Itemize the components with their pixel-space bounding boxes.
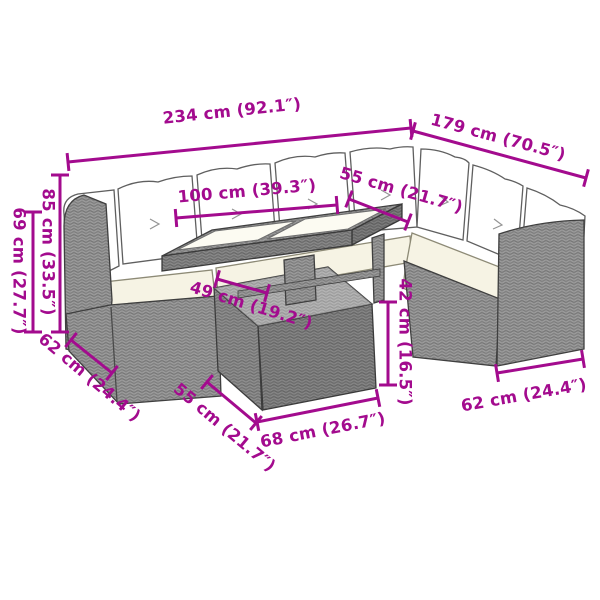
diagram-canvas: 234 cm (92.1″)179 cm (70.5″)100 cm (39.3… [0,0,600,600]
dimension-line [255,413,259,431]
table-frame-post [372,234,384,303]
dimension-line [67,153,69,171]
dimension-label-sofa-depth-right: 62 cm (24.4″) [460,375,589,416]
dimension-label-total-width: 234 cm (92.1″) [162,94,302,127]
right-armrest [497,220,584,366]
dimension-label-table-base-width: 68 cm (26.7″) [259,409,387,452]
dimension-line [496,364,499,382]
dimension-arm-height: 69 cm (27.7″) [10,207,43,334]
dimension-line [582,350,585,368]
dimension-line [376,389,380,407]
dimension-label-arm-height: 69 cm (27.7″) [10,207,29,334]
dimension-line [336,196,337,214]
dimension-label-table-base-height: 42 cm (16.5″) [396,278,415,405]
dimension-diagram: 234 cm (92.1″)179 cm (70.5″)100 cm (39.3… [0,0,600,600]
dimension-label-back-height: 85 cm (33.5″) [39,188,58,315]
dimension-line [175,209,176,227]
